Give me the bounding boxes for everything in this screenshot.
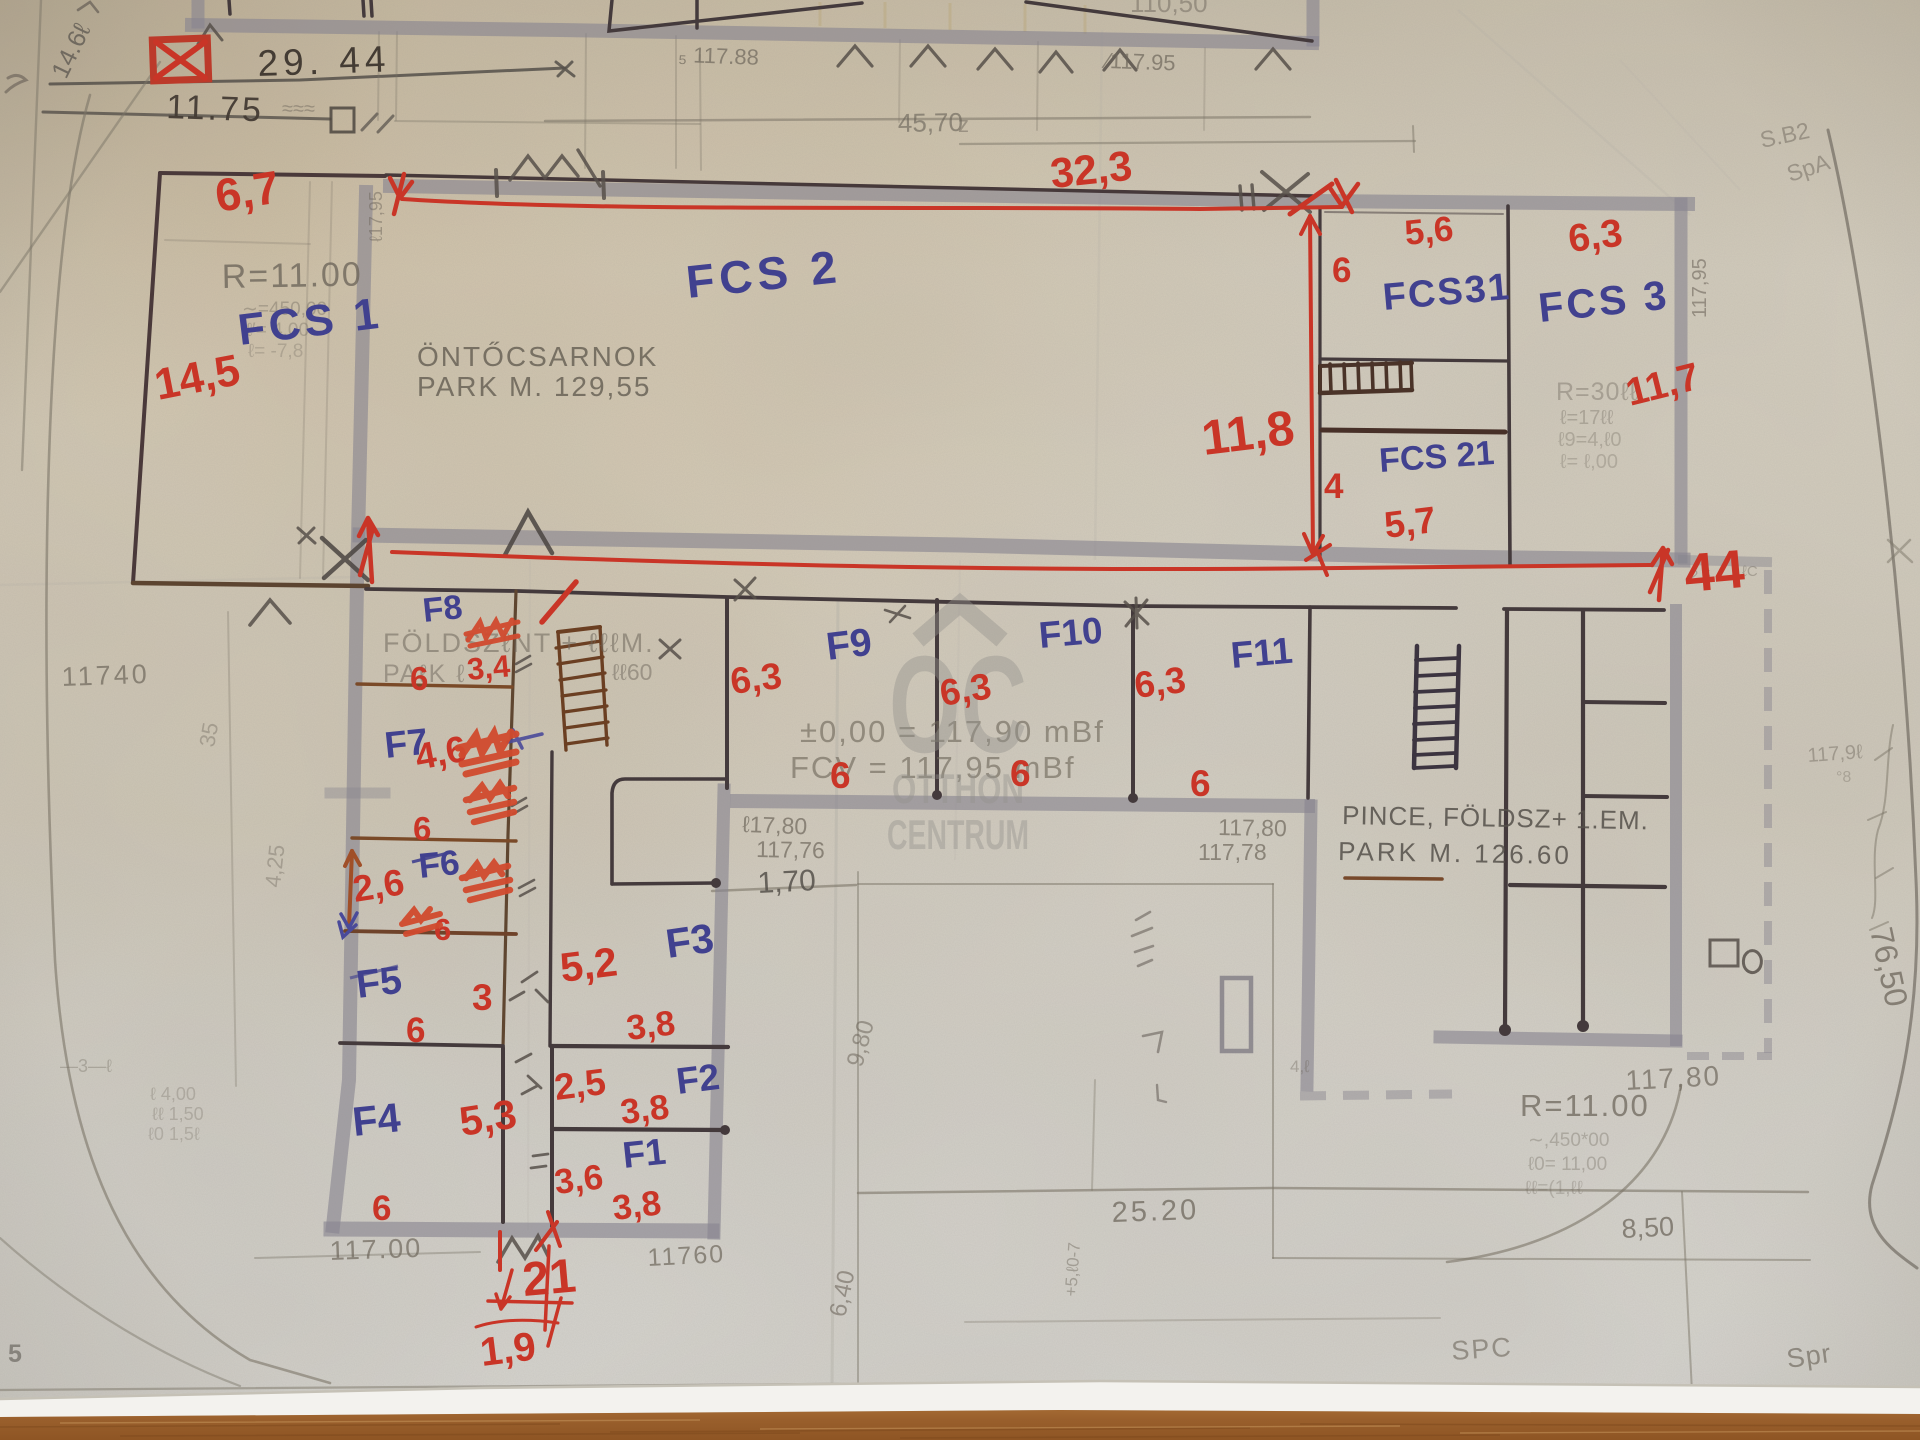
svg-text:5,2: 5,2 [557, 938, 619, 991]
svg-text:117,9ℓ: 117,9ℓ [1807, 741, 1864, 767]
svg-text:ℓℓ 1,50: ℓℓ 1,50 [152, 1104, 204, 1124]
svg-text:F11: F11 [1229, 630, 1294, 676]
svg-text:F7: F7 [383, 721, 430, 766]
svg-text:z: z [958, 112, 969, 137]
svg-text:F1: F1 [621, 1131, 668, 1176]
svg-text:ℓ=17ℓℓ: ℓ=17ℓℓ [1560, 407, 1614, 429]
svg-text:3,8: 3,8 [610, 1183, 663, 1228]
svg-text:6: 6 [413, 810, 431, 847]
svg-text:1,9: 1,9 [478, 1324, 539, 1374]
svg-text:F4: F4 [350, 1094, 403, 1145]
svg-text:ℓ0 1,5ℓ: ℓ0 1,5ℓ [148, 1124, 200, 1144]
svg-text:11740: 11740 [61, 659, 150, 692]
svg-text:F2: F2 [674, 1056, 722, 1102]
svg-text:—3—ℓ: —3—ℓ [60, 1056, 112, 1076]
svg-text:6,3: 6,3 [728, 655, 784, 702]
svg-text:44: 44 [1682, 539, 1747, 604]
svg-text:ℓ17,80: ℓ17,80 [742, 811, 808, 839]
svg-text:FÖLDSZℓNT + ℓℓℓM.: FÖLDSZℓNT + ℓℓℓM. [383, 628, 655, 658]
svg-text:6,7: 6,7 [211, 161, 282, 222]
svg-text:6: 6 [410, 660, 428, 697]
svg-text:₅ 117.88: ₅ 117.88 [678, 42, 759, 70]
svg-text:F8: F8 [421, 588, 464, 630]
svg-text:SPC: SPC [1450, 1332, 1513, 1366]
svg-text:6: 6 [1010, 753, 1031, 794]
svg-text:ℓ17,95: ℓ17,95 [366, 191, 386, 242]
svg-text:3,8: 3,8 [624, 1003, 677, 1048]
svg-text:110,50: 110,50 [1130, 0, 1208, 18]
svg-text:Spr: Spr [1785, 1338, 1834, 1374]
svg-text:11.75: 11.75 [166, 88, 265, 129]
svg-text:°8: °8 [1836, 769, 1851, 786]
svg-text:29. 44: 29. 44 [257, 38, 391, 84]
svg-text:117,80: 117,80 [1218, 814, 1287, 841]
svg-text:∼,450*00: ∼,450*00 [1528, 1130, 1609, 1151]
svg-text:F6: F6 [417, 843, 462, 886]
svg-text:4: 4 [1324, 467, 1344, 506]
svg-text:5: 5 [8, 1340, 22, 1368]
svg-text:ℓℓ60: ℓℓ60 [612, 659, 652, 685]
svg-text:6: 6 [406, 1011, 425, 1050]
svg-text:F9: F9 [824, 621, 874, 669]
svg-text:3,6: 3,6 [552, 1157, 605, 1202]
svg-text:32,3: 32,3 [1048, 142, 1134, 197]
svg-text:117,80: 117,80 [1625, 1060, 1722, 1096]
svg-text:F10: F10 [1037, 610, 1104, 656]
svg-text:3,4: 3,4 [466, 648, 513, 687]
svg-text:FCS 21: FCS 21 [1378, 434, 1496, 480]
svg-text:⁄117.95: ⁄117.95 [1101, 48, 1176, 76]
svg-text:PINCE, FÖLDSZ+ 1.EM.: PINCE, FÖLDSZ+ 1.EM. [1342, 800, 1649, 835]
svg-text:3: 3 [472, 977, 493, 1018]
svg-text:2,5: 2,5 [552, 1061, 608, 1108]
svg-text:35: 35 [194, 720, 223, 748]
svg-text:45,70: 45,70 [898, 107, 964, 138]
svg-text:11,8: 11,8 [1199, 401, 1298, 466]
svg-text:ℓ 4,00: ℓ 4,00 [150, 1084, 196, 1104]
svg-text:6,3: 6,3 [1566, 212, 1625, 261]
svg-text:117,76: 117,76 [756, 836, 825, 863]
svg-text:5,6: 5,6 [1403, 209, 1455, 253]
svg-text:3,8: 3,8 [618, 1087, 671, 1132]
svg-text:117,95: 117,95 [1689, 258, 1711, 318]
svg-text:ÖNTŐCSARNOK: ÖNTŐCSARNOK [417, 341, 658, 372]
svg-text:11760: 11760 [647, 1240, 726, 1272]
svg-text:5,3: 5,3 [456, 1091, 519, 1145]
svg-text:4,ℓ: 4,ℓ [1290, 1057, 1310, 1076]
svg-text:21: 21 [520, 1250, 578, 1307]
svg-text:OTTHON: OTTHON [892, 765, 1024, 812]
svg-text:2,6: 2,6 [350, 861, 407, 910]
svg-text:6: 6 [830, 755, 851, 796]
svg-text:ℓℓ=(1,ℓℓ: ℓℓ=(1,ℓℓ [1525, 1178, 1583, 1199]
svg-text:PARK M. 126.60: PARK M. 126.60 [1338, 836, 1572, 870]
svg-text:F3: F3 [663, 915, 717, 967]
svg-text:25.20: 25.20 [1111, 1194, 1200, 1229]
svg-text:R=11.00: R=11.00 [221, 256, 363, 296]
svg-text:6,3: 6,3 [937, 665, 994, 714]
svg-text:4,25: 4,25 [260, 843, 289, 888]
svg-text:≈≈≈: ≈≈≈ [282, 98, 315, 120]
svg-text:117.00: 117.00 [329, 1233, 423, 1266]
svg-text:8,50: 8,50 [1621, 1211, 1675, 1244]
svg-text:1,70: 1,70 [757, 864, 817, 900]
svg-text:6: 6 [372, 1189, 391, 1228]
svg-text:6,3: 6,3 [1132, 659, 1188, 706]
svg-text:PARK M. 129,55: PARK M. 129,55 [417, 371, 651, 402]
svg-text:117,78: 117,78 [1198, 839, 1267, 865]
svg-text:6: 6 [1190, 763, 1211, 804]
svg-text:5,7: 5,7 [1382, 499, 1438, 546]
svg-text:ℓ0= 11,00: ℓ0= 11,00 [1528, 1154, 1607, 1175]
svg-text:+5,ℓ0-7: +5,ℓ0-7 [1061, 1242, 1084, 1297]
svg-text:CENTRUM: CENTRUM [887, 811, 1029, 858]
svg-text:ℓ9=4,ℓ0: ℓ9=4,ℓ0 [1558, 429, 1622, 451]
svg-text:ℓ= ℓ,00: ℓ= ℓ,00 [1560, 451, 1618, 473]
svg-text:6: 6 [1332, 251, 1351, 290]
